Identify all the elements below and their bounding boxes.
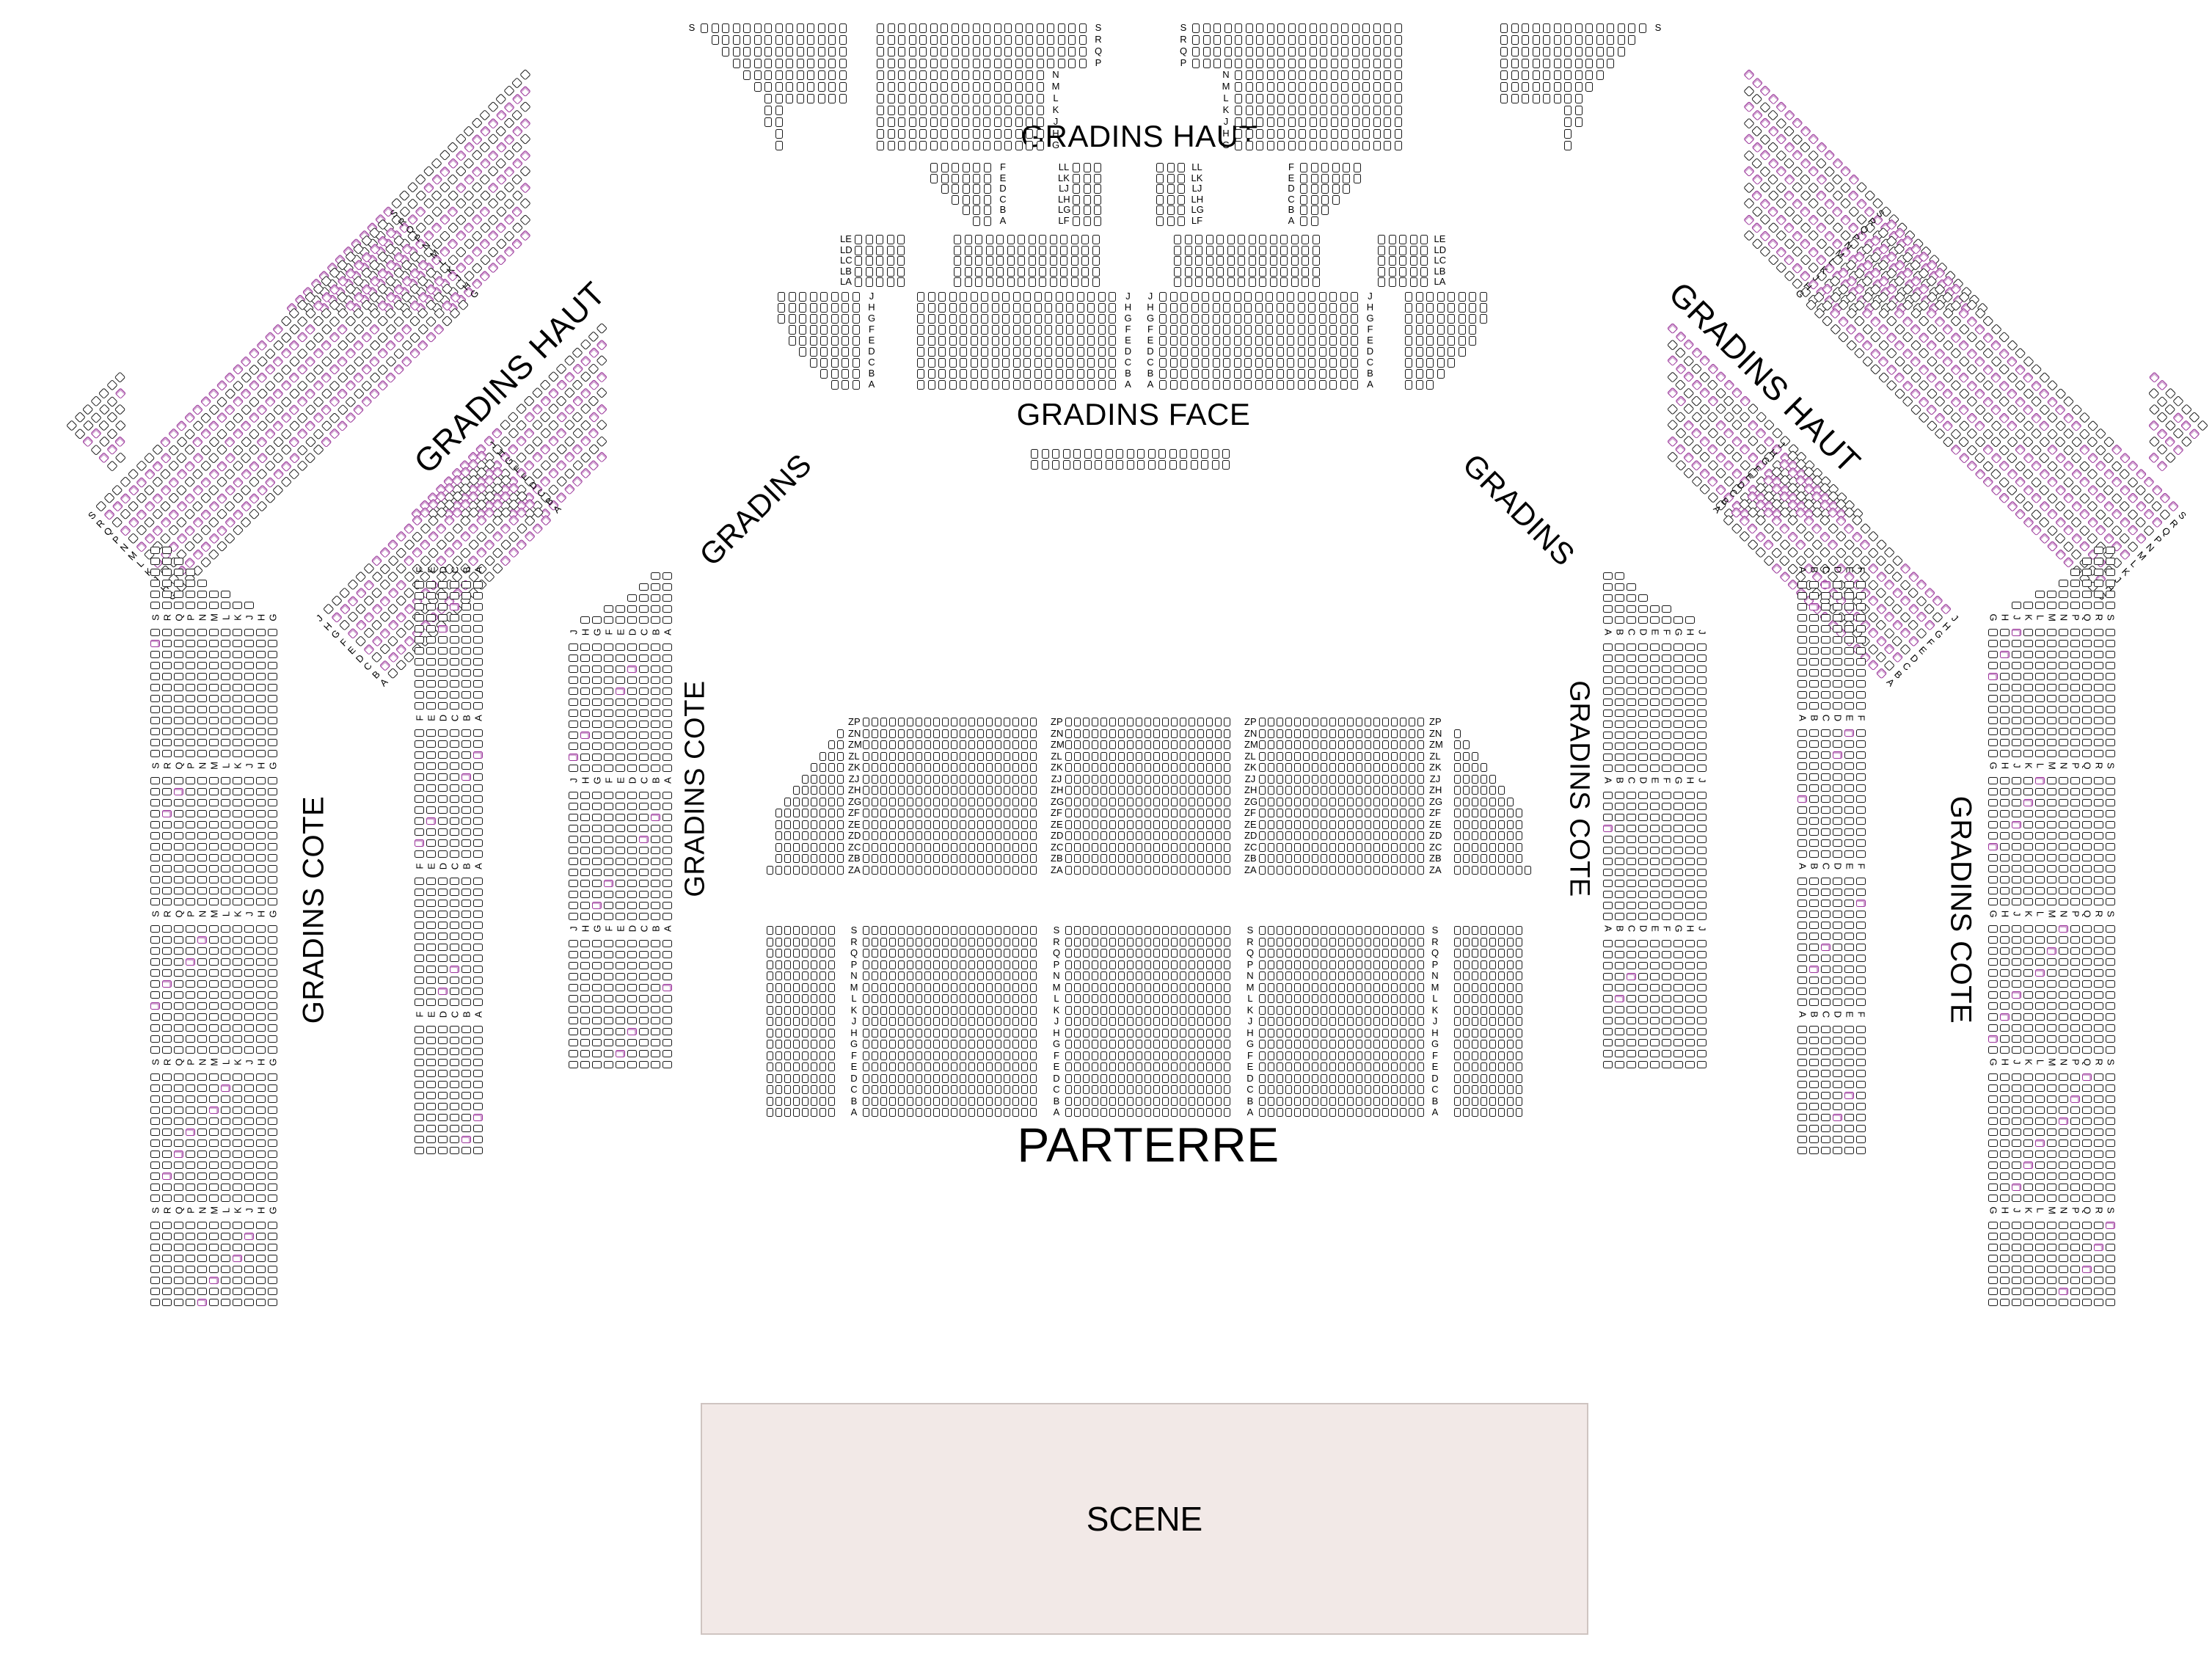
seat[interactable] bbox=[872, 820, 878, 829]
seat[interactable] bbox=[385, 372, 397, 384]
seat[interactable] bbox=[965, 267, 972, 277]
seat[interactable] bbox=[863, 1097, 869, 1106]
seat[interactable] bbox=[1235, 82, 1242, 92]
seat[interactable] bbox=[1050, 235, 1057, 244]
seat[interactable] bbox=[786, 70, 793, 80]
seat[interactable] bbox=[1203, 59, 1211, 68]
seat[interactable] bbox=[1060, 256, 1067, 266]
seat[interactable] bbox=[1004, 971, 1010, 980]
seat[interactable] bbox=[168, 460, 180, 472]
seat[interactable] bbox=[784, 949, 791, 958]
seat[interactable] bbox=[1058, 35, 1065, 45]
seat[interactable] bbox=[820, 763, 826, 772]
seat[interactable] bbox=[962, 59, 969, 68]
seat[interactable] bbox=[216, 412, 227, 424]
seat[interactable] bbox=[941, 141, 948, 150]
seat[interactable] bbox=[1092, 1017, 1098, 1026]
seat[interactable] bbox=[1340, 380, 1348, 390]
seat[interactable] bbox=[996, 246, 1004, 255]
seat[interactable] bbox=[872, 1017, 878, 1026]
seat[interactable] bbox=[811, 798, 817, 806]
seat[interactable] bbox=[1288, 141, 1296, 150]
seat[interactable] bbox=[479, 158, 491, 169]
seat[interactable] bbox=[404, 523, 415, 535]
seat[interactable] bbox=[1760, 198, 1772, 210]
seat[interactable] bbox=[74, 428, 86, 440]
seat[interactable] bbox=[1180, 1029, 1186, 1038]
seat[interactable] bbox=[1294, 1017, 1301, 1026]
seat[interactable] bbox=[793, 1074, 800, 1083]
seat[interactable] bbox=[802, 809, 808, 817]
seat[interactable] bbox=[828, 854, 835, 863]
seat[interactable] bbox=[1216, 267, 1224, 277]
seat[interactable] bbox=[404, 587, 415, 599]
seat[interactable] bbox=[1298, 358, 1305, 368]
seat[interactable] bbox=[986, 1085, 993, 1094]
seat[interactable] bbox=[1489, 1074, 1496, 1083]
seat[interactable] bbox=[1400, 926, 1406, 935]
seat[interactable] bbox=[467, 539, 479, 551]
seat[interactable] bbox=[588, 428, 599, 440]
seat[interactable] bbox=[1417, 1029, 1424, 1038]
seat[interactable] bbox=[1365, 1051, 1371, 1060]
seat[interactable] bbox=[1244, 369, 1252, 379]
seat[interactable] bbox=[1472, 926, 1478, 935]
seat[interactable] bbox=[1170, 336, 1178, 346]
seat[interactable] bbox=[793, 798, 800, 806]
seat[interactable] bbox=[1294, 866, 1301, 875]
seat[interactable] bbox=[492, 499, 503, 511]
seat[interactable] bbox=[968, 926, 975, 935]
seat[interactable] bbox=[828, 47, 836, 56]
seat[interactable] bbox=[1145, 971, 1151, 980]
seat[interactable] bbox=[807, 47, 814, 56]
seat[interactable] bbox=[1373, 854, 1380, 863]
seat[interactable] bbox=[1065, 1085, 1072, 1094]
seat[interactable] bbox=[409, 348, 420, 360]
seat[interactable] bbox=[580, 452, 591, 464]
seat[interactable] bbox=[960, 1074, 966, 1083]
seat[interactable] bbox=[1100, 831, 1107, 840]
seat[interactable] bbox=[928, 380, 935, 390]
seat[interactable] bbox=[1100, 1006, 1107, 1015]
seat[interactable] bbox=[1321, 752, 1327, 761]
seat[interactable] bbox=[1224, 740, 1230, 749]
seat[interactable] bbox=[907, 831, 913, 840]
seat[interactable] bbox=[1153, 1006, 1160, 1015]
seat[interactable] bbox=[1268, 809, 1274, 817]
seat[interactable] bbox=[1127, 729, 1134, 738]
seat[interactable] bbox=[917, 325, 924, 335]
seat[interactable] bbox=[503, 214, 515, 226]
seat[interactable] bbox=[1277, 380, 1284, 390]
seat[interactable] bbox=[1294, 938, 1301, 947]
seat[interactable] bbox=[1083, 926, 1089, 935]
seat[interactable] bbox=[842, 369, 849, 379]
seat[interactable] bbox=[1312, 949, 1318, 958]
seat[interactable] bbox=[1303, 831, 1310, 840]
seat[interactable] bbox=[898, 1029, 905, 1038]
seat[interactable] bbox=[933, 1040, 940, 1049]
seat[interactable] bbox=[916, 1006, 922, 1015]
seat[interactable] bbox=[1288, 117, 1296, 127]
seat[interactable] bbox=[1215, 949, 1222, 958]
seat[interactable] bbox=[379, 660, 391, 671]
seat[interactable] bbox=[1498, 809, 1505, 817]
seat[interactable] bbox=[880, 866, 887, 875]
seat[interactable] bbox=[1347, 729, 1354, 738]
seat[interactable] bbox=[802, 1051, 808, 1060]
seat[interactable] bbox=[1148, 449, 1156, 459]
seat[interactable] bbox=[1145, 1006, 1151, 1015]
seat[interactable] bbox=[369, 324, 381, 335]
seat[interactable] bbox=[1171, 983, 1178, 992]
seat[interactable] bbox=[924, 843, 931, 852]
seat[interactable] bbox=[1329, 820, 1336, 829]
seat[interactable] bbox=[1047, 23, 1054, 33]
seat[interactable] bbox=[1347, 809, 1354, 817]
seat[interactable] bbox=[1285, 1006, 1292, 1015]
seat[interactable] bbox=[1395, 141, 1402, 150]
seat[interactable] bbox=[1564, 141, 1572, 150]
seat[interactable] bbox=[1338, 866, 1345, 875]
seat[interactable] bbox=[916, 1085, 922, 1094]
seat[interactable] bbox=[933, 1062, 940, 1071]
seat[interactable] bbox=[1287, 347, 1294, 357]
seat[interactable] bbox=[1294, 775, 1301, 784]
seat[interactable] bbox=[1400, 786, 1406, 795]
seat[interactable] bbox=[1338, 854, 1345, 863]
seat[interactable] bbox=[387, 539, 399, 551]
seat[interactable] bbox=[986, 729, 993, 738]
seat[interactable] bbox=[863, 960, 869, 969]
seat[interactable] bbox=[1840, 198, 1852, 210]
seat[interactable] bbox=[1266, 358, 1273, 368]
seat[interactable] bbox=[503, 85, 515, 97]
seat[interactable] bbox=[479, 270, 491, 282]
seat[interactable] bbox=[793, 1006, 800, 1015]
seat[interactable] bbox=[898, 141, 905, 150]
seat[interactable] bbox=[1065, 926, 1072, 935]
seat[interactable] bbox=[995, 831, 1001, 840]
seat[interactable] bbox=[387, 652, 399, 663]
seat[interactable] bbox=[1463, 1097, 1470, 1106]
seat[interactable] bbox=[152, 460, 164, 472]
seat[interactable] bbox=[1352, 141, 1359, 150]
seat[interactable] bbox=[455, 230, 467, 242]
seat[interactable] bbox=[1118, 843, 1125, 852]
seat[interactable] bbox=[802, 960, 808, 969]
seat[interactable] bbox=[1312, 1051, 1318, 1060]
seat[interactable] bbox=[872, 1074, 878, 1083]
seat[interactable] bbox=[1489, 820, 1496, 829]
seat[interactable] bbox=[1012, 763, 1019, 772]
seat[interactable] bbox=[1320, 35, 1327, 45]
seat[interactable] bbox=[1516, 1108, 1522, 1117]
seat[interactable] bbox=[596, 404, 607, 415]
seat[interactable] bbox=[1400, 960, 1406, 969]
seat[interactable] bbox=[1045, 314, 1052, 324]
seat[interactable] bbox=[1800, 190, 1811, 202]
seat[interactable] bbox=[1109, 786, 1116, 795]
seat[interactable] bbox=[1331, 106, 1338, 115]
seat[interactable] bbox=[1498, 971, 1505, 980]
seat[interactable] bbox=[1191, 303, 1199, 313]
seat[interactable] bbox=[986, 983, 993, 992]
seat[interactable] bbox=[1171, 1074, 1178, 1083]
seat[interactable] bbox=[1329, 752, 1336, 761]
seat[interactable] bbox=[1004, 740, 1010, 749]
seat[interactable] bbox=[889, 926, 896, 935]
seat[interactable] bbox=[1481, 1062, 1487, 1071]
seat[interactable] bbox=[511, 222, 523, 234]
seat[interactable] bbox=[1299, 47, 1306, 56]
seat[interactable] bbox=[1469, 292, 1476, 302]
seat[interactable] bbox=[1347, 1051, 1354, 1060]
seat[interactable] bbox=[1244, 325, 1252, 335]
seat[interactable] bbox=[764, 59, 772, 68]
seat[interactable] bbox=[831, 314, 839, 324]
seat[interactable] bbox=[1312, 938, 1318, 947]
seat[interactable] bbox=[1489, 843, 1496, 852]
seat[interactable] bbox=[1030, 820, 1037, 829]
seat[interactable] bbox=[811, 809, 817, 817]
seat[interactable] bbox=[1498, 831, 1505, 840]
seat[interactable] bbox=[471, 182, 483, 194]
seat[interactable] bbox=[1213, 336, 1220, 346]
seat[interactable] bbox=[1472, 752, 1478, 761]
seat[interactable] bbox=[1800, 174, 1811, 186]
seat[interactable] bbox=[1395, 23, 1402, 33]
seat[interactable] bbox=[401, 340, 412, 351]
seat[interactable] bbox=[996, 277, 1004, 287]
seat[interactable] bbox=[1321, 1040, 1327, 1049]
seat[interactable] bbox=[1171, 971, 1178, 980]
seat[interactable] bbox=[1087, 292, 1095, 302]
seat[interactable] bbox=[880, 786, 887, 795]
seat[interactable] bbox=[1417, 1017, 1424, 1026]
seat[interactable] bbox=[1481, 960, 1487, 969]
seat[interactable] bbox=[492, 515, 503, 527]
seat[interactable] bbox=[995, 1029, 1001, 1038]
seat[interactable] bbox=[1321, 960, 1327, 969]
seat[interactable] bbox=[818, 47, 825, 56]
seat[interactable] bbox=[288, 468, 300, 480]
seat[interactable] bbox=[952, 82, 959, 92]
seat[interactable] bbox=[960, 820, 966, 829]
seat[interactable] bbox=[1213, 314, 1220, 324]
seat[interactable] bbox=[1083, 729, 1089, 738]
seat[interactable] bbox=[1004, 59, 1012, 68]
seat[interactable] bbox=[1136, 866, 1142, 875]
seat[interactable] bbox=[949, 347, 957, 357]
seat[interactable] bbox=[811, 1051, 817, 1060]
seat[interactable] bbox=[1277, 866, 1283, 875]
seat[interactable] bbox=[1191, 325, 1199, 335]
seat[interactable] bbox=[928, 325, 935, 335]
seat[interactable] bbox=[889, 1062, 896, 1071]
seat[interactable] bbox=[353, 324, 365, 335]
seat[interactable] bbox=[1079, 35, 1087, 45]
seat[interactable] bbox=[807, 23, 814, 33]
seat[interactable] bbox=[1215, 1062, 1222, 1071]
seat[interactable] bbox=[1030, 831, 1037, 840]
seat[interactable] bbox=[1118, 1051, 1125, 1060]
seat[interactable] bbox=[1321, 786, 1327, 795]
seat[interactable] bbox=[1153, 960, 1160, 969]
seat[interactable] bbox=[1391, 949, 1398, 958]
seat[interactable] bbox=[1234, 336, 1241, 346]
seat[interactable] bbox=[960, 866, 966, 875]
seat[interactable] bbox=[1332, 163, 1340, 172]
seat[interactable] bbox=[1311, 195, 1318, 205]
seat[interactable] bbox=[1215, 798, 1222, 806]
seat[interactable] bbox=[1100, 843, 1107, 852]
seat[interactable] bbox=[363, 579, 375, 591]
seat[interactable] bbox=[1481, 1006, 1487, 1015]
seat[interactable] bbox=[1222, 449, 1230, 459]
seat[interactable] bbox=[916, 926, 922, 935]
seat[interactable] bbox=[960, 960, 966, 969]
seat[interactable] bbox=[880, 775, 887, 784]
seat[interactable] bbox=[1021, 1108, 1028, 1117]
seat[interactable] bbox=[1202, 336, 1209, 346]
seat[interactable] bbox=[98, 452, 110, 464]
seat[interactable] bbox=[1189, 1097, 1195, 1106]
seat[interactable] bbox=[1277, 23, 1285, 33]
seat[interactable] bbox=[1389, 256, 1396, 266]
seat[interactable] bbox=[1215, 843, 1222, 852]
seat[interactable] bbox=[1023, 303, 1031, 313]
seat[interactable] bbox=[1516, 949, 1522, 958]
seat[interactable] bbox=[1320, 70, 1327, 80]
seat[interactable] bbox=[1373, 809, 1380, 817]
seat[interactable] bbox=[1472, 960, 1478, 969]
seat[interactable] bbox=[1145, 763, 1151, 772]
seat[interactable] bbox=[965, 277, 972, 287]
seat[interactable] bbox=[909, 59, 916, 68]
seat[interactable] bbox=[353, 340, 365, 351]
seat[interactable] bbox=[898, 740, 905, 749]
seat[interactable] bbox=[1516, 971, 1522, 980]
seat[interactable] bbox=[863, 1051, 869, 1060]
seat[interactable] bbox=[1775, 117, 1787, 129]
seat[interactable] bbox=[1277, 369, 1284, 379]
seat[interactable] bbox=[907, 752, 913, 761]
seat[interactable] bbox=[837, 854, 844, 863]
seat[interactable] bbox=[984, 174, 991, 183]
seat[interactable] bbox=[417, 324, 428, 335]
seat[interactable] bbox=[1321, 820, 1327, 829]
seat[interactable] bbox=[811, 1062, 817, 1071]
seat[interactable] bbox=[897, 277, 905, 287]
seat[interactable] bbox=[555, 379, 567, 391]
seat[interactable] bbox=[1459, 292, 1466, 302]
seat[interactable] bbox=[1136, 798, 1142, 806]
seat[interactable] bbox=[1303, 1051, 1310, 1060]
seat[interactable] bbox=[1056, 380, 1063, 390]
seat[interactable] bbox=[572, 459, 583, 471]
seat[interactable] bbox=[995, 1006, 1001, 1015]
seat[interactable] bbox=[1255, 336, 1263, 346]
seat[interactable] bbox=[363, 595, 375, 607]
seat[interactable] bbox=[784, 1040, 791, 1049]
seat[interactable] bbox=[184, 429, 196, 440]
seat[interactable] bbox=[1416, 380, 1423, 390]
seat[interactable] bbox=[1300, 163, 1307, 172]
seat[interactable] bbox=[1365, 938, 1371, 947]
seat[interactable] bbox=[1480, 303, 1487, 313]
seat[interactable] bbox=[1310, 35, 1317, 45]
seat[interactable] bbox=[1351, 347, 1358, 357]
seat[interactable] bbox=[1092, 971, 1098, 980]
seat[interactable] bbox=[1045, 369, 1052, 379]
seat[interactable] bbox=[1235, 94, 1242, 103]
seat[interactable] bbox=[1224, 1085, 1230, 1094]
seat[interactable] bbox=[1197, 843, 1204, 852]
seat[interactable] bbox=[256, 388, 268, 400]
seat[interactable] bbox=[1277, 1029, 1283, 1038]
seat[interactable] bbox=[1516, 983, 1522, 992]
seat[interactable] bbox=[1030, 1085, 1037, 1094]
seat[interactable] bbox=[872, 938, 878, 947]
seat[interactable] bbox=[1340, 292, 1348, 302]
seat[interactable] bbox=[1145, 1029, 1151, 1038]
seat[interactable] bbox=[369, 340, 381, 351]
seat[interactable] bbox=[1373, 1074, 1380, 1083]
seat[interactable] bbox=[954, 235, 961, 244]
seat[interactable] bbox=[888, 117, 895, 127]
seat[interactable] bbox=[1215, 718, 1222, 726]
seat[interactable] bbox=[1277, 729, 1283, 738]
seat[interactable] bbox=[1197, 1040, 1204, 1049]
seat[interactable] bbox=[1516, 843, 1522, 852]
seat[interactable] bbox=[451, 491, 463, 503]
seat[interactable] bbox=[1136, 1062, 1142, 1071]
seat[interactable] bbox=[1489, 938, 1496, 947]
seat[interactable] bbox=[288, 437, 300, 448]
seat[interactable] bbox=[1417, 1097, 1424, 1106]
seat[interactable] bbox=[1153, 843, 1160, 852]
seat[interactable] bbox=[588, 347, 599, 359]
seat[interactable] bbox=[184, 541, 196, 553]
seat[interactable] bbox=[1400, 938, 1406, 947]
seat[interactable] bbox=[483, 459, 495, 470]
seat[interactable] bbox=[1399, 277, 1406, 287]
seat[interactable] bbox=[106, 428, 118, 440]
seat[interactable] bbox=[1268, 1108, 1274, 1117]
seat[interactable] bbox=[1171, 763, 1178, 772]
seat[interactable] bbox=[863, 729, 869, 738]
seat[interactable] bbox=[128, 533, 139, 544]
seat[interactable] bbox=[1356, 983, 1362, 992]
seat[interactable] bbox=[1215, 1006, 1222, 1015]
seat[interactable] bbox=[256, 437, 268, 448]
seat[interactable] bbox=[1174, 235, 1181, 244]
seat[interactable] bbox=[1409, 1006, 1415, 1015]
seat[interactable] bbox=[1189, 843, 1195, 852]
seat[interactable] bbox=[1234, 303, 1241, 313]
seat[interactable] bbox=[280, 412, 292, 424]
seat[interactable] bbox=[1191, 347, 1199, 357]
seat[interactable] bbox=[898, 866, 905, 875]
seat[interactable] bbox=[1277, 843, 1283, 852]
seat[interactable] bbox=[820, 1006, 826, 1015]
seat[interactable] bbox=[960, 1017, 966, 1026]
seat[interactable] bbox=[1277, 325, 1284, 335]
seat[interactable] bbox=[1136, 1017, 1142, 1026]
seat[interactable] bbox=[1180, 729, 1186, 738]
